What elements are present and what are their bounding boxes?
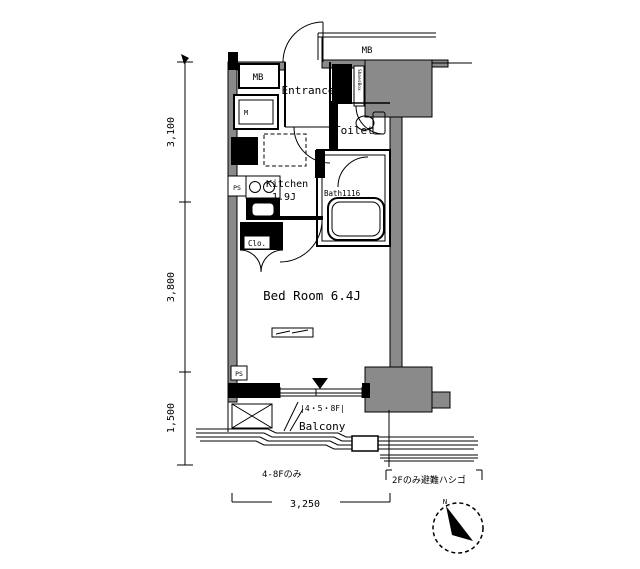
evacuation-ladder (352, 436, 378, 451)
dim-bottom: 3,250 (290, 499, 320, 510)
closet-label: Clo. (248, 239, 266, 248)
closet-door-arc-right (261, 250, 283, 272)
closet-door-arc-left (240, 250, 261, 271)
window-marker (312, 378, 328, 389)
entrance-door-arc (283, 22, 323, 62)
dim-left-top: 3,100 (166, 117, 177, 147)
bath-door-arc (338, 157, 368, 187)
kitchen-label: Kitchen (266, 179, 308, 190)
dimension-line-left (177, 62, 193, 465)
balcony-floors-label: |4・5・8F| (300, 404, 345, 413)
dim-left-middle: 3,800 (166, 272, 177, 302)
ladder-note: 2Fのみ避難ハシゴ (392, 474, 466, 486)
toilet-label: Toilet (334, 124, 374, 137)
column-bottom-right (365, 367, 432, 412)
counter-symbol-lines (276, 330, 308, 334)
entrance-label: Entrance (282, 84, 335, 97)
corridor-outline (318, 33, 436, 60)
bedroom-label: Bed Room 6.4J (263, 288, 361, 303)
bedroom-window (280, 387, 362, 398)
compass-needle (446, 506, 473, 541)
kitchen-sink (252, 203, 274, 216)
eave-lines (196, 429, 478, 461)
shoes-box-label: ShoesBox (356, 69, 362, 91)
stove-burner-1 (250, 182, 261, 193)
ps-lower-label: PS (235, 370, 243, 378)
shoes-cabinet (332, 64, 352, 104)
floor-plan-drawing: MB Entrance ShoesBox MB M Toilet Bath111… (0, 0, 640, 569)
column-top-right (365, 60, 432, 117)
balcony-label: Balcony (299, 420, 346, 433)
meter-label: M (244, 109, 248, 117)
north-mark: N (443, 498, 447, 506)
mb-left-label: MB (253, 73, 264, 83)
bedroom-door-arc (280, 220, 322, 262)
refrigerator-space (264, 134, 306, 166)
ps-upper-label: PS (233, 184, 241, 192)
kitchen-size-label: 1.9J (272, 192, 296, 203)
floors-note: 4-8Fのみ (262, 469, 302, 480)
bathtub-inner (332, 202, 380, 236)
floor-plan-page: MB Entrance ShoesBox MB M Toilet Bath111… (0, 0, 640, 569)
bathtub (328, 198, 384, 240)
balcony-hatch-x (232, 404, 272, 428)
north-compass: N (433, 498, 483, 553)
bath-label: Bath1116 (324, 189, 361, 198)
dim-left-bottom: 1,500 (166, 403, 177, 433)
mb-top-label: MB (362, 46, 373, 56)
